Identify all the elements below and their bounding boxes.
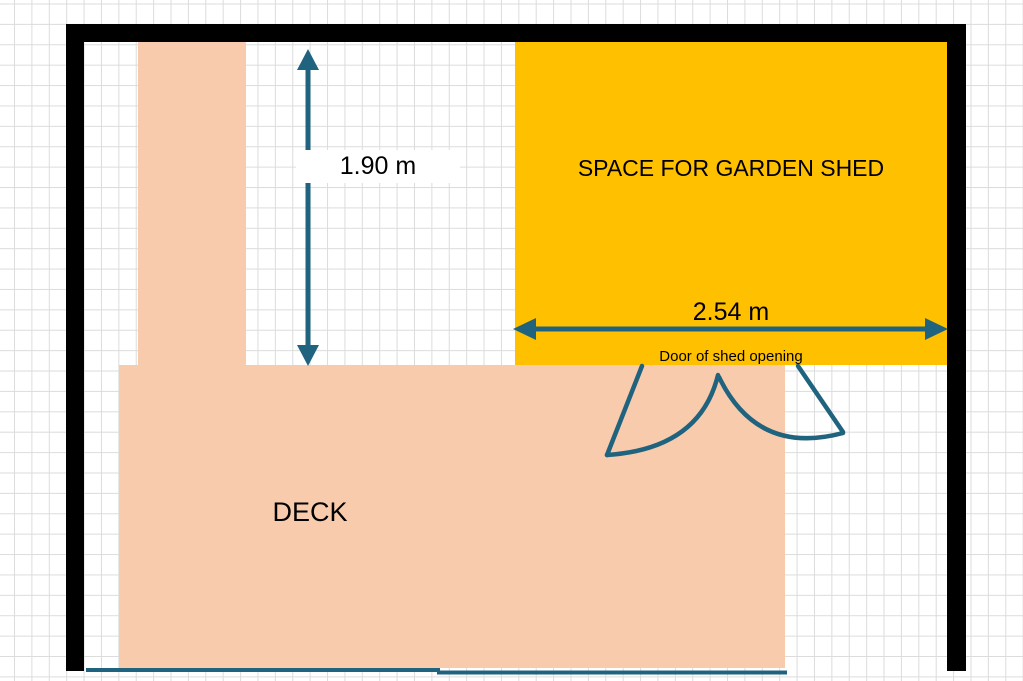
- vertical-dimension-arrow: [297, 49, 319, 366]
- shed-width-dimension-label: 2.54 m: [515, 298, 947, 327]
- door-opening-label: Door of shed opening: [515, 348, 947, 365]
- shed-label: SPACE FOR GARDEN SHED: [515, 155, 947, 182]
- wall-right: [947, 24, 966, 671]
- bottom-edge-line: [86, 670, 787, 673]
- deck-label: DECK: [119, 497, 501, 528]
- wall-left: [66, 24, 84, 671]
- plan-canvas: SPACE FOR GARDEN SHED 2.54 m Door of she…: [0, 0, 1023, 681]
- wall-top: [66, 24, 966, 42]
- deck-column-area: [138, 42, 246, 365]
- clearance-dimension-label: 1.90 m: [296, 150, 460, 183]
